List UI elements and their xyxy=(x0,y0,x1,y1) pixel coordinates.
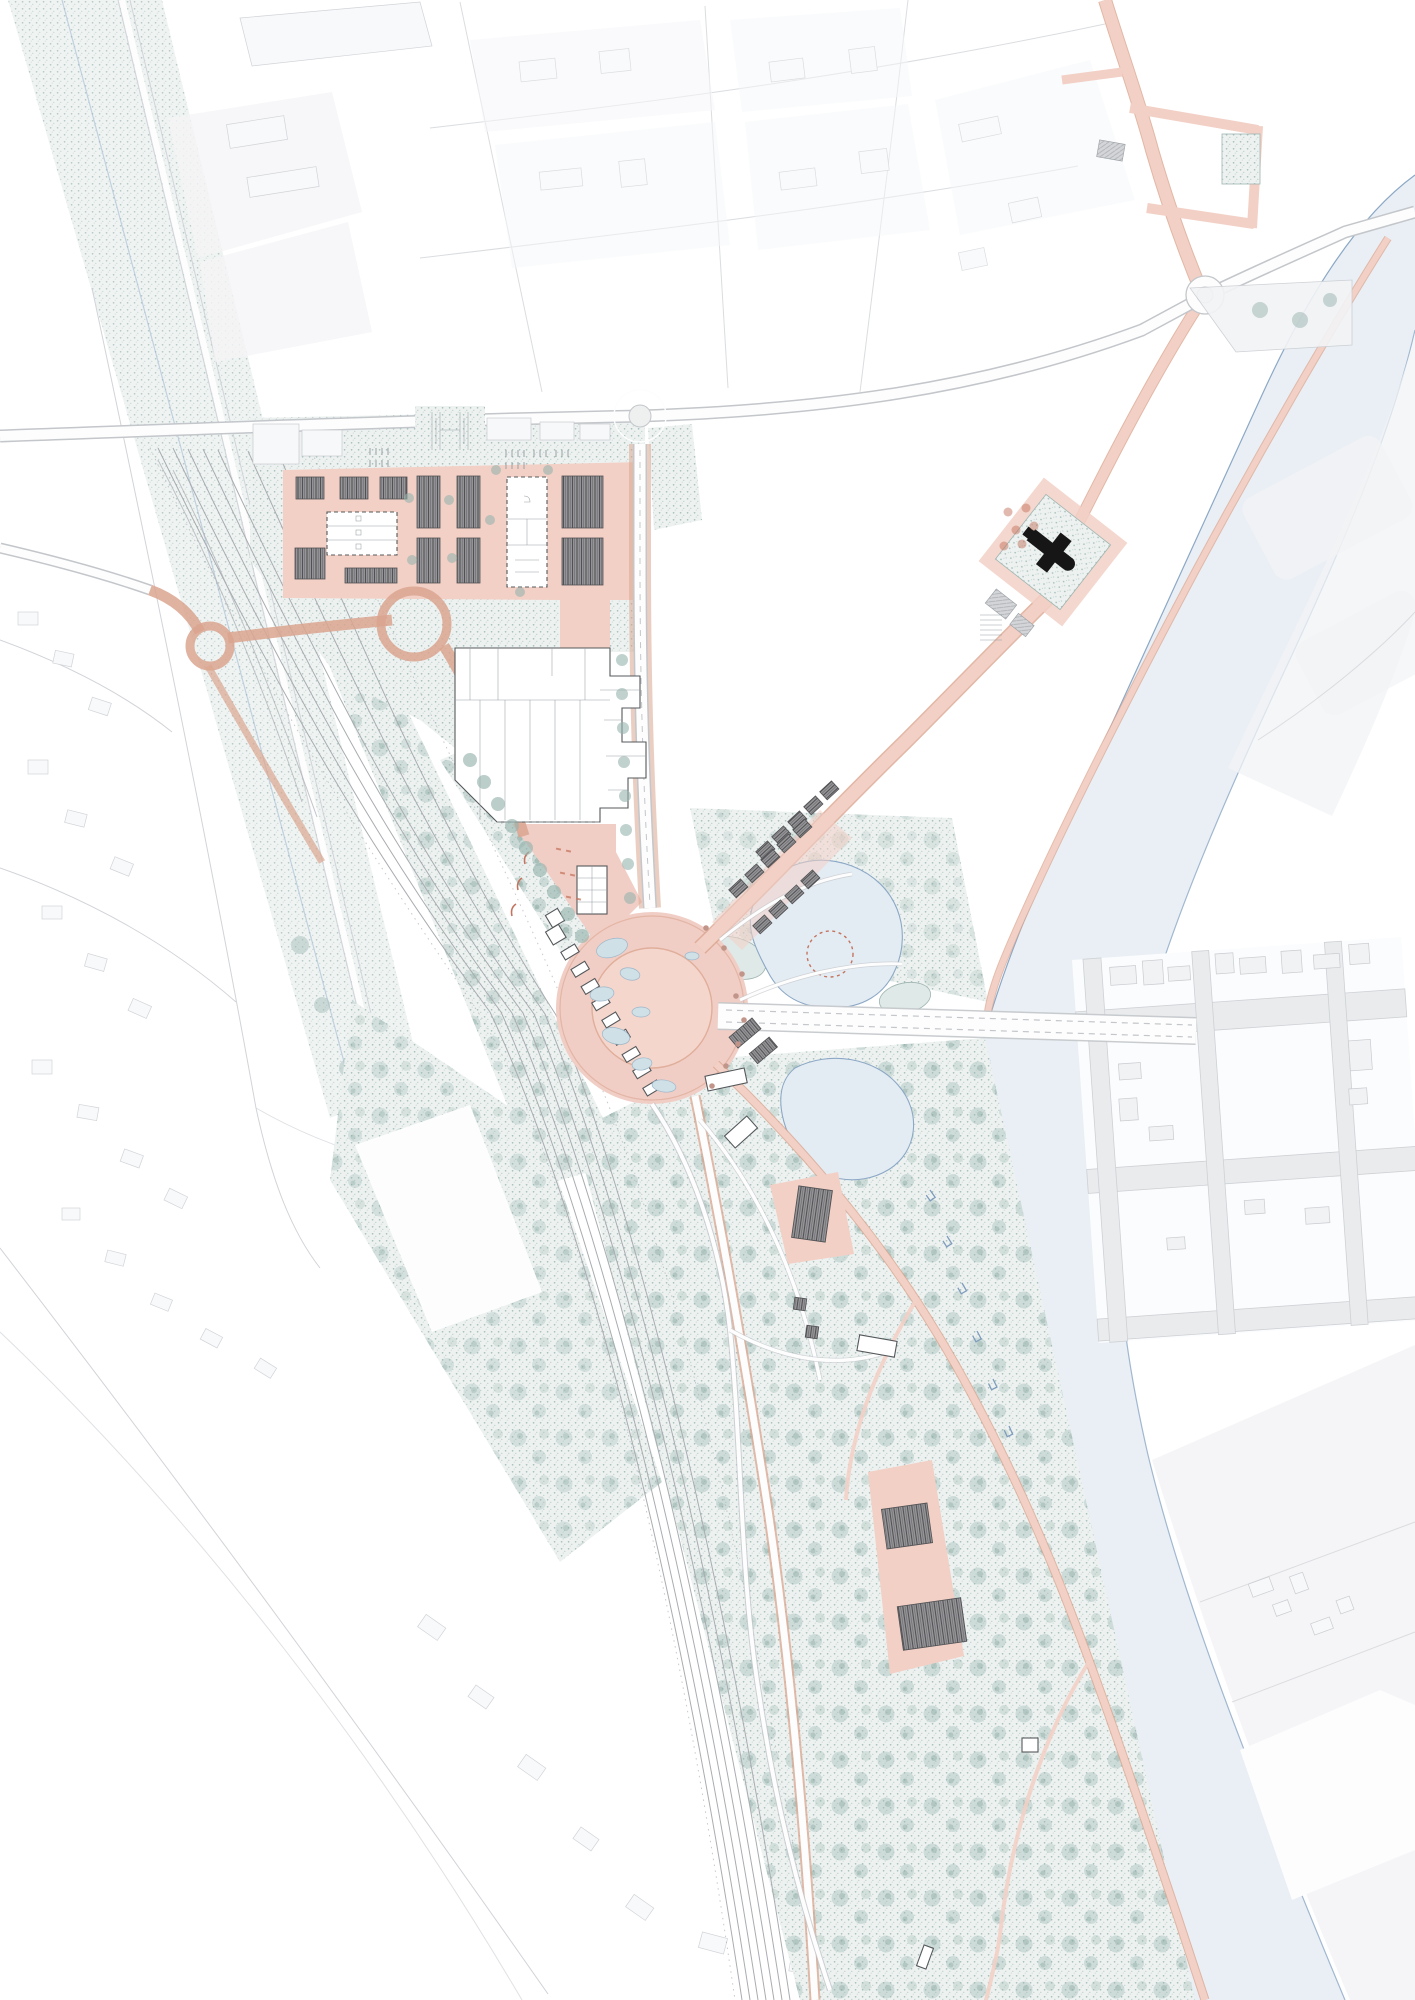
quarter-white-building-b xyxy=(507,477,547,587)
district-across-river xyxy=(1072,937,1415,1343)
station-avenue xyxy=(640,444,650,908)
h-building xyxy=(415,406,485,456)
site-plan-drawing xyxy=(0,0,1415,2000)
masterplan-site-plan xyxy=(0,0,1415,2000)
quarter-white-building-a xyxy=(327,512,397,555)
